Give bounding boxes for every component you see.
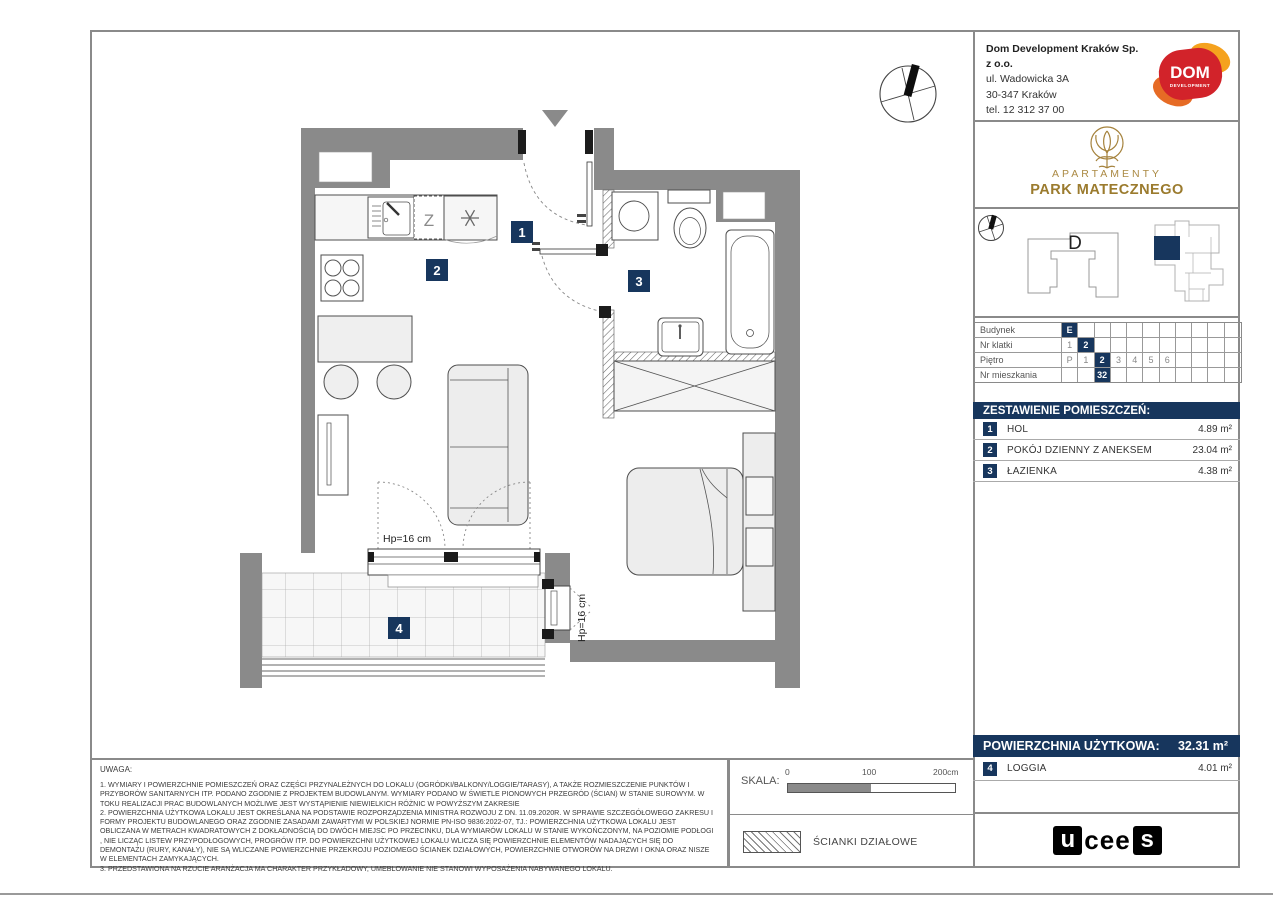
unit-table-cell: [1095, 338, 1111, 352]
unit-table-cell: [1225, 368, 1241, 382]
building-label: D: [1068, 233, 1082, 254]
unit-table-cell: [1160, 338, 1176, 352]
unit-table-cell: [1062, 368, 1078, 382]
scale-bar-dark: [787, 783, 873, 793]
scale-box: SKALA: 0 100 200cm: [729, 758, 972, 814]
publisher-name: Dom Development Kraków Sp. z o.o.: [986, 42, 1146, 72]
unit-table-cell: [1160, 323, 1176, 337]
loggia-name: LOGGIA: [1007, 763, 1198, 774]
ucees-s: s: [1133, 826, 1162, 855]
publisher-block: Dom Development Kraków Sp. z o.o. ul. Wa…: [986, 42, 1146, 118]
stool-2: [377, 365, 411, 399]
notes-paragraphs: 1. WYMIARY I POWIERZCHNIE POMIESZCZEŃ OR…: [100, 781, 717, 874]
unit-table-row: Nr mieszkania32: [974, 368, 1241, 382]
loggia-side-window: [545, 586, 570, 630]
dom-development-logo: DOM DEVELOPMENT: [1150, 40, 1234, 110]
compass-icon: [880, 64, 936, 122]
entrance-door-handle2: [577, 220, 586, 223]
unit-table-cell: 1: [1078, 353, 1094, 367]
unit-table-cell: P: [1062, 353, 1078, 367]
unit-table-cell: [1176, 338, 1192, 352]
unit-table-cell: [1192, 338, 1208, 352]
sheet-bottom-edge: [0, 893, 1273, 895]
room-name: ŁAZIENKA: [1007, 466, 1198, 477]
room-chip-1-label: 1: [518, 225, 525, 240]
estate-name-line2: PARK MATECZNEGO: [973, 182, 1241, 198]
rooms-header: ZESTAWIENIE POMIESZCZEŃ:: [973, 402, 1240, 419]
bathroom-door-leaf: [540, 249, 598, 254]
room-chip-3-label: 3: [635, 274, 642, 289]
loggia-area: 4.01 m²: [1198, 763, 1232, 774]
ucees-u: u: [1053, 826, 1082, 855]
stool-1: [324, 365, 358, 399]
unit-table-cell: 3: [1111, 353, 1127, 367]
unit-table-cell: [1160, 368, 1176, 382]
unit-table-cell: [1176, 323, 1192, 337]
notes-paragraph: 3. PRZEDSTAWIONA NA RZUCIE ARANŻACJA MA …: [100, 865, 717, 874]
loggia-railing: [262, 659, 545, 676]
scale-bar-light: [871, 783, 956, 793]
unit-table-cell: [1078, 323, 1094, 337]
unit-table-cell: [1078, 368, 1094, 382]
unit-table-cell: 6: [1160, 353, 1176, 367]
room-chip: 3: [983, 464, 997, 478]
unit-table-cell: [1143, 323, 1159, 337]
unit-table-cell: [1127, 323, 1143, 337]
unit-table-cell: 4: [1127, 353, 1143, 367]
unit-table-cell: 5: [1143, 353, 1159, 367]
parapet-height-label-2: Hp=16 cm: [576, 594, 588, 642]
wall-bathroom-top: [614, 170, 780, 190]
unit-table-cell: [1225, 323, 1241, 337]
scale-tick-0: 0: [785, 767, 790, 777]
kitchen-island: [318, 316, 412, 362]
sink-drain: [384, 218, 388, 222]
entrance-door-swing: [524, 163, 586, 225]
unit-table-cell: [1208, 338, 1224, 352]
scale-label: SKALA:: [741, 775, 780, 787]
notes-title: UWAGA:: [100, 765, 717, 774]
unit-table-row-label: Nr klatki: [974, 338, 1062, 352]
ucees-logo: u cee s: [973, 812, 1242, 868]
location-diagram: D: [975, 209, 1240, 313]
entrance-door-handle: [577, 214, 586, 217]
publisher-city: 30-347 Kraków: [986, 88, 1146, 103]
notes-box: UWAGA: 1. WYMIARY I POWIERZCHNIE POMIESZ…: [90, 758, 728, 868]
floor-minimap: [1154, 221, 1223, 301]
unit-table-cell: E: [1062, 323, 1078, 337]
entrance-post-right: [585, 130, 593, 154]
unit-table-row: Nr klatki12: [974, 338, 1241, 353]
unit-table-cell: [1127, 338, 1143, 352]
unit-table-cell: [1176, 353, 1192, 367]
bathroom: [612, 190, 775, 411]
loggia-side-window-frame: [551, 591, 557, 625]
divider-1: [973, 120, 1240, 122]
summary-header: POWIERZCHNIA UŻYTKOWA: 32.31 m²: [973, 735, 1240, 757]
unit-table-cell: [1208, 323, 1224, 337]
unit-table-cell: [1192, 323, 1208, 337]
room-chip-2-label: 2: [433, 263, 440, 278]
parapet-height-label: Hp=16 cm: [383, 533, 431, 545]
tv-cabinet: [318, 415, 348, 495]
tv-screen: [327, 423, 331, 485]
unit-table-cell: [1143, 368, 1159, 382]
side-window-post-bottom: [542, 629, 554, 639]
floorplan-sheet: Z: [0, 0, 1273, 900]
unit-table-cell: [1208, 368, 1224, 382]
washbasin-tap-dot: [678, 324, 681, 327]
toilet-tank: [668, 190, 710, 203]
side-window-post-top: [542, 579, 554, 589]
entrance-arrow-icon: [542, 110, 568, 127]
shaft-top-right: [723, 192, 765, 219]
summary-value: 32.31 m²: [1178, 739, 1228, 753]
bathroom-door-handle: [532, 242, 540, 245]
entrance: [518, 110, 593, 226]
legend-box: ŚCIANKI DZIAŁOWE: [729, 815, 972, 868]
publisher-address: ul. Wadowicka 3A: [986, 72, 1146, 87]
unit-table-cell: 32: [1095, 368, 1111, 382]
unit-table-cell: [1111, 338, 1127, 352]
bed-headboard: [743, 433, 775, 611]
room-chip: 4: [983, 762, 997, 776]
room-chip-4-label: 4: [395, 621, 403, 636]
unit-table-row: PiętroP123456: [974, 353, 1241, 368]
unit-table-cell: [1111, 368, 1127, 382]
publisher-phone: tel. 12 312 37 00: [986, 103, 1146, 118]
room-area: 4.89 m²: [1198, 424, 1232, 435]
unit-table-cell: [1143, 338, 1159, 352]
unit-table-cell: [1192, 368, 1208, 382]
room-chip: 1: [983, 422, 997, 436]
wall-left: [301, 128, 315, 553]
bathroom-door: [532, 242, 611, 318]
wall-loggia-left: [240, 553, 262, 688]
room-area: 4.38 m²: [1198, 466, 1232, 477]
unit-table-cell: [1111, 323, 1127, 337]
divider-3: [973, 316, 1240, 318]
wall-bottom: [570, 640, 800, 662]
wall-right: [775, 170, 800, 662]
dishwasher-label: Z: [424, 211, 434, 230]
room-chip: 2: [983, 443, 997, 457]
nightstand-1: [746, 477, 773, 515]
entrance-door-leaf: [587, 162, 592, 226]
rooms-list: 1HOL4.89 m²2POKÓJ DZIENNY Z ANEKSEM23.04…: [973, 419, 1240, 482]
partition-swatch-icon: [743, 831, 801, 853]
estate-name-line1: APARTAMENTY: [973, 168, 1241, 180]
legend-partition-label: ŚCIANKI DZIAŁOWE: [813, 836, 918, 848]
bathroom-door-post: [596, 244, 608, 256]
dom-logo-subtext: DEVELOPMENT: [1170, 83, 1210, 88]
unit-table-cell: [1208, 353, 1224, 367]
wall-top: [390, 128, 523, 160]
ucees-cee: cee: [1084, 826, 1130, 855]
room-name: HOL: [1007, 424, 1198, 435]
mini-compass-icon: [979, 215, 1004, 241]
shaft-top-left: [319, 152, 372, 182]
unit-table-cell: 2: [1095, 353, 1111, 367]
entrance-post-left: [518, 130, 526, 154]
room-name: POKÓJ DZIENNY Z ANEKSEM: [1007, 445, 1193, 456]
unit-table-row-label: Nr mieszkania: [974, 368, 1062, 382]
loggia-row: 4 LOGGIA 4.01 m²: [973, 757, 1240, 781]
unit-table-row-label: Budynek: [974, 323, 1062, 337]
unit-table-cell: [1192, 353, 1208, 367]
bathroom-door-swing: [542, 256, 599, 311]
unit-table-cell: [1095, 323, 1111, 337]
partition-hall-bathroom-lower: [603, 310, 614, 418]
bathroom-door-hinge: [599, 306, 611, 318]
bed: [627, 468, 743, 575]
unit-table-cell: 1: [1062, 338, 1078, 352]
scale-tick-100: 100: [862, 767, 876, 777]
scale-tick-200: 200cm: [933, 767, 959, 777]
floor-plan: Z: [90, 30, 973, 758]
toilet-bowl: [674, 208, 706, 248]
wall-right-of-entrance: [594, 128, 614, 190]
unit-table-row-label: Piętro: [974, 353, 1062, 367]
dom-logo-text: DOM: [1170, 63, 1210, 82]
estate-tree-icon: [1084, 124, 1130, 170]
unit-table-cell: [1176, 368, 1192, 382]
unit-table: BudynekENr klatki12PiętroP123456Nr miesz…: [973, 322, 1242, 383]
unit-table-cell: [1225, 338, 1241, 352]
summary-label: POWIERZCHNIA UŻYTKOWA:: [983, 739, 1160, 753]
balcony-exterior-sill: [388, 575, 538, 587]
unit-table-cell: 2: [1078, 338, 1094, 352]
unit-table-cell: [1225, 353, 1241, 367]
room-area: 23.04 m²: [1193, 445, 1232, 456]
room-row: 2POKÓJ DZIENNY Z ANEKSEM23.04 m²: [973, 440, 1240, 461]
unit-table-row: BudynekE: [974, 323, 1241, 338]
notes-paragraph: 2. POWIERZCHNIA UŻYTKOWA LOKALU JEST OKR…: [100, 809, 717, 865]
unit-table-cell: [1127, 368, 1143, 382]
sofa: [448, 365, 528, 525]
unit-highlight: [1154, 236, 1180, 260]
building-outline: D: [1028, 233, 1118, 297]
bathroom-door-handle2: [532, 248, 540, 251]
room-row: 1HOL4.89 m²: [973, 419, 1240, 440]
notes-paragraph: 1. WYMIARY I POWIERZCHNIE POMIESZCZEŃ OR…: [100, 781, 717, 809]
bathtub: [726, 230, 774, 354]
nightstand-2: [746, 528, 773, 566]
room-row: 3ŁAZIENKA4.38 m²: [973, 461, 1240, 482]
